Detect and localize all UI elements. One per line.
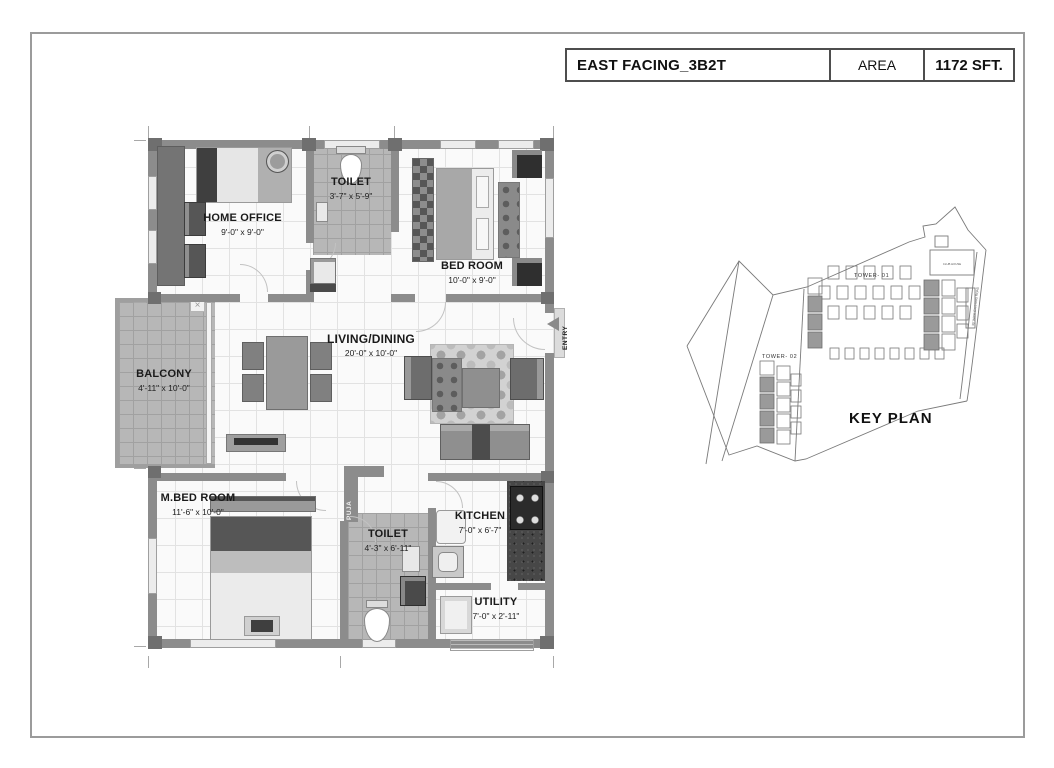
dimension-tick <box>134 302 146 303</box>
furniture-mbed-dresser <box>210 496 316 512</box>
balcony-floor <box>115 298 215 468</box>
club-house-annex <box>935 236 948 247</box>
wall-left-upper <box>148 140 157 302</box>
key-plan-drawing: TOWER- 01 TOWER- 02 CLUB HOUSE 30' WIDE … <box>678 196 1012 488</box>
window-homeoffice-2 <box>148 230 157 264</box>
dimension-tick <box>340 656 341 668</box>
dimension-tick <box>553 126 554 138</box>
furniture-living-rug-accent <box>432 358 462 412</box>
area-label: AREA <box>829 50 923 80</box>
site-boundary-top <box>687 207 986 346</box>
furniture-homeoffice-pillow <box>197 148 217 202</box>
kitchen-appliance <box>436 510 466 544</box>
furniture-dining-chair <box>310 342 332 370</box>
key-plan: TOWER- 01 TOWER- 02 CLUB HOUSE 30' WIDE … <box>678 196 1012 488</box>
furniture-bedroom-runner <box>498 182 520 258</box>
window-mbed-left <box>148 538 157 594</box>
tower-01-label: TOWER- 01 <box>854 273 889 279</box>
utility-washer <box>440 596 472 634</box>
wall-pier <box>148 636 162 649</box>
wall-toilet-bedroom <box>391 140 399 232</box>
wall-pier <box>388 138 402 151</box>
furniture-mbed-blanket <box>211 551 311 573</box>
furniture-bedroom-nightstand-2 <box>512 258 542 286</box>
dimension-tick <box>148 126 149 138</box>
dimension-tick <box>134 468 146 469</box>
wall-kitchen-top <box>428 473 545 481</box>
furniture-mbed-headboard <box>211 517 311 551</box>
entry-arrow-icon <box>547 317 559 331</box>
furniture-niche-base <box>310 284 336 292</box>
tower-01-cluster <box>808 266 968 359</box>
plan-title: EAST FACING_3B2T <box>567 50 829 80</box>
furniture-coffee-table <box>462 368 500 408</box>
wall-under-homeoffice <box>148 294 240 302</box>
dimension-tick <box>148 656 149 668</box>
wall-under-bedroom-stub <box>391 294 415 302</box>
dimension-tick <box>553 656 554 668</box>
fixture-basin-bottom <box>402 546 420 572</box>
wall-pier <box>540 138 554 151</box>
road-outer-edge <box>967 250 986 401</box>
balcony-sliding-window <box>206 302 212 464</box>
furniture-armchair-left <box>404 356 432 400</box>
dimension-tick <box>134 140 146 141</box>
club-house-label: CLUB HOUSE <box>943 262 961 266</box>
title-block: EAST FACING_3B2T AREA 1172 SFT. <box>565 48 1015 82</box>
fixture-wc-tank-top <box>336 146 366 154</box>
kitchen-stove <box>510 486 543 530</box>
fixture-shower <box>400 576 426 606</box>
furniture-dining-chair <box>310 374 332 402</box>
furniture-sofa-throw <box>472 424 490 460</box>
site-boundary-bottom <box>687 346 967 461</box>
furniture-bedroom-blanket <box>437 169 472 259</box>
furniture-tv <box>234 438 278 445</box>
drawing-sheet: { "title_block": { "title": "EAST FACING… <box>0 0 1054 768</box>
furniture-niche <box>310 258 336 284</box>
window-bedroom-2 <box>498 140 534 149</box>
wall-mbed-toilet <box>340 521 348 639</box>
wall-pier <box>302 138 316 151</box>
kitchen-sink-bowl <box>438 552 458 572</box>
wall-under-homeoffice-2 <box>268 294 314 302</box>
furniture-dining-table <box>266 336 308 410</box>
dimension-tick <box>394 126 395 138</box>
furniture-dining-chair <box>242 342 264 370</box>
wall-pier <box>148 292 161 304</box>
puja-label: PUJA <box>346 474 353 520</box>
window-bedroom-1 <box>440 140 476 149</box>
furniture-homeoffice-fan <box>266 150 289 173</box>
wall-pier <box>541 292 554 304</box>
furniture-bedroom-pillow-2 <box>476 218 489 250</box>
window-homeoffice-1 <box>148 176 157 210</box>
wall-kitchen-utility <box>436 583 491 590</box>
furniture-armchair-right <box>510 358 544 400</box>
furniture-bedroom-pillow-1 <box>476 176 489 208</box>
wall-right-lower <box>545 353 554 648</box>
parcel-line <box>706 261 739 464</box>
furniture-homeoffice-desk <box>157 146 185 286</box>
dimension-tick <box>309 126 310 138</box>
utility-shutter <box>450 639 534 651</box>
furniture-mbed-pillow-accent <box>251 620 273 632</box>
wall-kitchen-utility-2 <box>518 583 545 590</box>
tower-02-highlighted-units <box>760 377 774 443</box>
dimension-tick <box>134 646 146 647</box>
wall-pier <box>148 466 161 478</box>
key-plan-title: KEY PLAN <box>849 410 933 427</box>
furniture-dining-chair <box>242 374 264 402</box>
furniture-homeoffice-chair-2 <box>184 244 206 278</box>
window-bedroom-right <box>545 178 554 238</box>
tower-02-label: TOWER- 02 <box>762 354 797 360</box>
window-mbed-bottom <box>190 639 276 648</box>
fixture-basin-top <box>316 202 328 222</box>
wall-homeoffice-toilet <box>306 140 314 243</box>
entry-label: ENTRY <box>562 310 569 350</box>
wall-mbed-top <box>148 473 286 481</box>
furniture-bedroom-nightstand-1 <box>512 150 542 178</box>
area-value: 1172 SFT. <box>923 50 1013 80</box>
fixture-wc-tank-bottom <box>366 600 388 608</box>
floor-plan: × PUJA ENTRY <box>110 118 580 673</box>
furniture-bedroom-wardrobe <box>412 158 434 262</box>
wall-under-bedroom <box>446 294 554 302</box>
furniture-homeoffice-chair-1 <box>184 202 206 236</box>
wall-pier <box>540 636 554 649</box>
parcel-line <box>795 289 804 461</box>
